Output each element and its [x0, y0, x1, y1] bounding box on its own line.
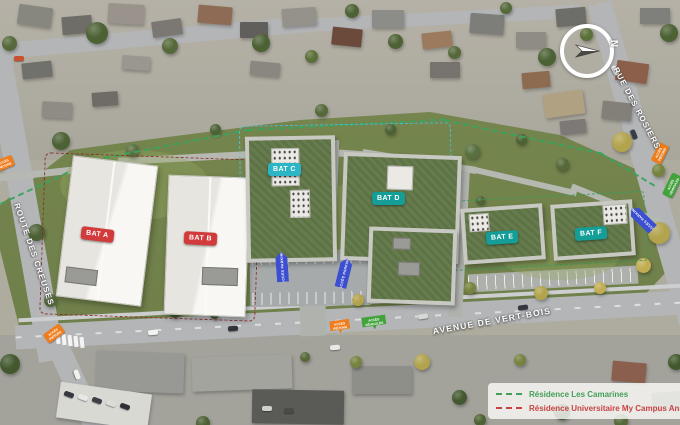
badge-bat-d: BAT D [372, 192, 405, 205]
car [73, 369, 81, 380]
crosswalk-stripe [67, 335, 72, 346]
legend-row-camarines: Résidence Les Camarines [496, 388, 680, 400]
legend-label: Résidence Les Camarines [529, 390, 628, 399]
tree [534, 286, 548, 300]
house-roof [17, 4, 53, 29]
compass-icon [560, 24, 614, 78]
roof-vent [202, 267, 239, 286]
roof-skylights [469, 213, 490, 232]
house-roof [601, 100, 633, 121]
building-central-south [367, 226, 458, 305]
tree [345, 4, 359, 18]
north-arrow-icon [573, 37, 601, 65]
tree [315, 104, 328, 117]
tree [352, 294, 364, 306]
house-roof [92, 91, 119, 107]
roof-skylights [602, 204, 627, 226]
house-roof [191, 354, 292, 391]
house-roof [249, 61, 280, 78]
legend-label: Résidence Universitaire My Campus Ann [529, 404, 680, 413]
tree [448, 46, 461, 59]
house-roof [108, 3, 145, 25]
tree [86, 22, 108, 44]
roof-ridge [205, 177, 212, 315]
house-roof [559, 119, 586, 136]
aerial-site-plan: BAT A BAT B BAT C BAT D BAT E BAT F ACCÈ… [0, 0, 680, 425]
house-roof [21, 60, 53, 79]
parking-sign-label: ACCÈS PARKING [279, 250, 285, 283]
house-roof [543, 89, 586, 118]
tree [210, 124, 221, 135]
car [228, 326, 238, 332]
tree [660, 24, 678, 42]
crosswalk-stripe [61, 334, 66, 345]
tree [305, 50, 318, 63]
car [148, 330, 158, 336]
tree [514, 354, 526, 366]
tree [474, 414, 486, 425]
house-roof [42, 101, 73, 119]
building-bat-c [245, 135, 337, 263]
compass-north-label: N [608, 40, 619, 47]
car [14, 56, 24, 61]
tree [538, 48, 556, 66]
legend-row-universitaire: Résidence Universitaire My Campus Ann [496, 402, 680, 414]
car [330, 345, 340, 351]
house-roof [640, 8, 670, 24]
tree [465, 144, 480, 159]
house-roof [516, 32, 546, 48]
tree [464, 282, 476, 294]
car [262, 406, 272, 411]
house-roof [421, 30, 453, 49]
house-roof [521, 71, 550, 89]
tree [668, 354, 680, 370]
tree [414, 354, 430, 370]
tree [350, 356, 362, 368]
roof-unit [393, 237, 411, 250]
roof-vent [64, 266, 98, 286]
house-roof [611, 361, 647, 384]
car [418, 313, 429, 319]
badge-bat-f: BAT F [575, 226, 608, 241]
roof-skylights [290, 190, 310, 218]
building-bat-b [164, 175, 251, 318]
house-roof [430, 62, 460, 78]
tree [196, 416, 210, 425]
tree [0, 354, 20, 374]
tree [612, 132, 632, 152]
tree [452, 390, 467, 405]
tree [500, 2, 512, 14]
tree [252, 34, 270, 52]
house-roof [197, 5, 232, 26]
legend-dash-green [496, 393, 522, 395]
crosswalk-stripe [79, 337, 84, 348]
tree [556, 158, 569, 171]
badge-bat-b: BAT B [184, 231, 218, 246]
house-roof [281, 7, 316, 27]
house-roof [331, 26, 363, 47]
tree [388, 34, 403, 49]
tree [162, 38, 178, 54]
tree [300, 352, 310, 362]
crosswalk-stripe [73, 336, 78, 347]
house-roof [372, 10, 404, 28]
house-roof [352, 366, 412, 394]
tree [52, 132, 70, 150]
house-roof [469, 13, 504, 35]
tree [2, 36, 17, 51]
house-roof [122, 55, 151, 71]
car [284, 408, 294, 413]
legend-dash-red [496, 407, 522, 409]
roof-skylights [387, 166, 414, 191]
tree [594, 282, 606, 294]
legend: Résidence Les Camarines Résidence Univer… [488, 383, 680, 419]
house-roof [151, 18, 183, 38]
badge-bat-c: BAT C [268, 163, 301, 176]
badge-bat-e: BAT E [486, 230, 519, 245]
roof-unit [398, 262, 420, 277]
house-roof [95, 350, 184, 393]
tree [652, 164, 665, 177]
